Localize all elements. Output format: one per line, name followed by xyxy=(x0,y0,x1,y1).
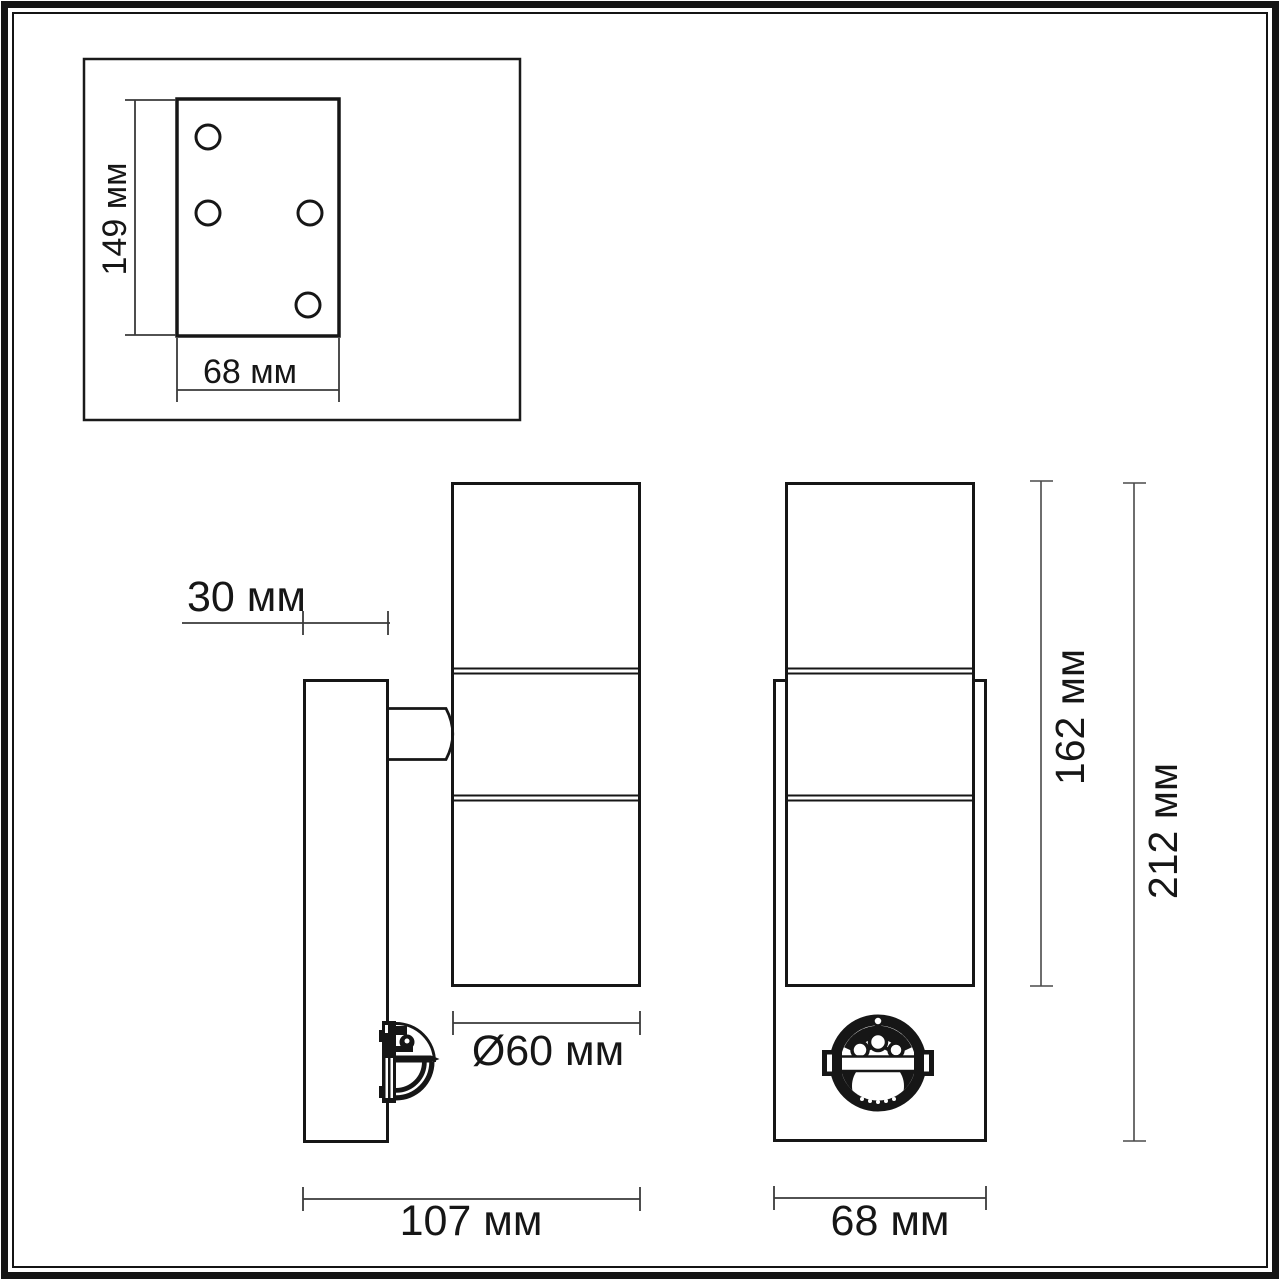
drawing-canvas xyxy=(0,0,1280,1280)
dim-label-plate-width: 68 мм xyxy=(150,354,350,390)
dim-label-wall-plate-depth: 30 мм xyxy=(187,579,407,615)
mounting-hole-icon xyxy=(298,201,322,225)
technical-drawing-page: 149 мм 68 мм 30 мм Ø60 мм 107 мм 68 мм 1… xyxy=(0,0,1280,1280)
dim-label-diameter: Ø60 мм xyxy=(438,1033,658,1069)
mounting-hole-icon xyxy=(196,201,220,225)
dim-label-body-height: 162 мм xyxy=(1052,617,1088,817)
mounting-hole-icon xyxy=(196,125,220,149)
mounting-hole-icon xyxy=(296,293,320,317)
dim-label-total-height: 212 мм xyxy=(1145,731,1181,931)
front-cylinder xyxy=(787,484,974,986)
front-view xyxy=(775,484,986,1141)
dim-label-plate-height: 149 мм xyxy=(97,119,133,319)
side-cylinder xyxy=(453,484,640,986)
mounting-plate-top-view xyxy=(177,99,339,336)
dim-label-total-depth: 107 мм xyxy=(361,1203,581,1239)
side-wall-plate xyxy=(305,681,388,1142)
dim-label-front-width: 68 мм xyxy=(780,1203,1000,1239)
motion-sensor-side-icon xyxy=(379,1021,440,1103)
side-arm xyxy=(389,709,453,760)
